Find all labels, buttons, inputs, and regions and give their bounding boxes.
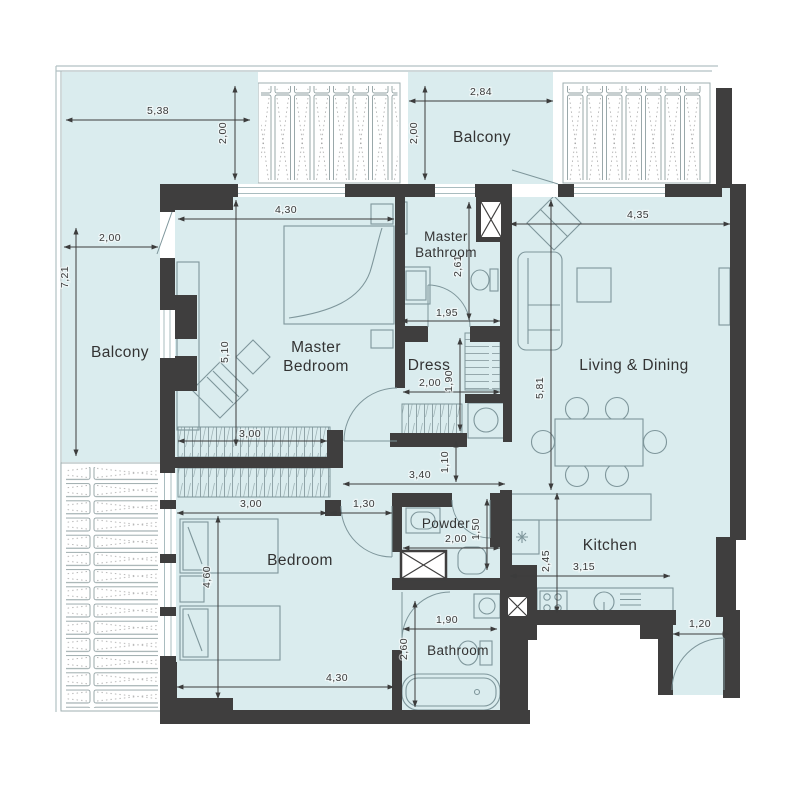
- dim-label: 1,20: [689, 618, 711, 630]
- room-label-powder: Powder: [422, 516, 470, 531]
- dim-label: 3,00: [240, 498, 262, 510]
- floor-plan-drawing: 5,38 2,00 2,00 7,21 2,84 2,00 4,30 5,10 …: [0, 0, 800, 800]
- room-label-balcony-left: Balcony: [91, 344, 149, 361]
- dim-label: 4,30: [275, 204, 297, 216]
- room-label-master-bedroom-2: Bedroom: [283, 358, 349, 375]
- dim-label: 1,95: [436, 307, 458, 319]
- dim-label: 4,60: [201, 566, 213, 588]
- dim-label: 4,35: [627, 209, 649, 221]
- window: [435, 184, 475, 197]
- pergola-slats-left: [261, 86, 398, 180]
- floor-plan-page: 5,38 2,00 2,00 7,21 2,84 2,00 4,30 5,10 …: [0, 0, 800, 800]
- pergola-slats-right: [566, 86, 703, 180]
- dim-label: 3,15: [573, 561, 595, 573]
- shaft-icon: [476, 197, 506, 242]
- shaft-icon: [504, 593, 531, 620]
- room-label-living-dining: Living & Dining: [579, 357, 688, 374]
- dress-wardrobe-bottom-icon: [402, 404, 462, 434]
- dining-chair-icon: [566, 464, 589, 487]
- dining-chair-icon: [606, 464, 629, 487]
- dining-chair-icon: [644, 431, 667, 454]
- room-label-master-bathroom-2: Bathroom: [415, 245, 477, 260]
- room-label-kitchen: Kitchen: [583, 537, 638, 554]
- dim-label: 1,50: [470, 518, 482, 540]
- dim-label: 2,60: [398, 638, 410, 660]
- room-label-balcony-top: Balcony: [453, 129, 511, 146]
- dim-label: 7,21: [59, 266, 71, 288]
- dim-label: 5,38: [147, 105, 169, 117]
- dim-label: 2,00: [408, 122, 420, 144]
- window: [574, 184, 665, 197]
- dim-label: 2,45: [540, 550, 552, 572]
- window: [238, 184, 345, 197]
- balcony-left-floor: [62, 72, 160, 462]
- room-label-master-bedroom-1: Master: [291, 339, 341, 356]
- dim-label: 5,10: [219, 341, 231, 363]
- room-label-bedroom: Bedroom: [267, 552, 333, 569]
- window: [160, 310, 175, 358]
- dim-label: 3,40: [409, 469, 431, 481]
- dim-label: 1,30: [353, 498, 375, 510]
- room-label-bathroom: Bathroom: [427, 643, 489, 658]
- dining-chair-icon: [606, 398, 629, 421]
- dim-label: 2,00: [99, 232, 121, 244]
- shaft-icon: [401, 551, 446, 579]
- bedroom-wardrobe-icon: [178, 468, 330, 497]
- dim-label: 1,90: [436, 614, 458, 626]
- dim-label: 1,10: [439, 451, 451, 473]
- dim-label: 2,00: [217, 122, 229, 144]
- dim-label: 2,00: [445, 533, 467, 545]
- dining-table-icon: [555, 419, 643, 466]
- dim-label: 4,30: [326, 672, 348, 684]
- window-band: [160, 473, 176, 665]
- louver-slats-bottom-left: [66, 467, 158, 708]
- room-label-master-bathroom-1: Master: [424, 229, 468, 244]
- dim-label: 3,00: [239, 428, 261, 440]
- room-label-dress: Dress: [408, 357, 450, 374]
- dim-label: 2,00: [419, 377, 441, 389]
- dim-label: 5,81: [534, 377, 546, 399]
- dining-chair-icon: [566, 398, 589, 421]
- dim-label: 2,84: [470, 86, 492, 98]
